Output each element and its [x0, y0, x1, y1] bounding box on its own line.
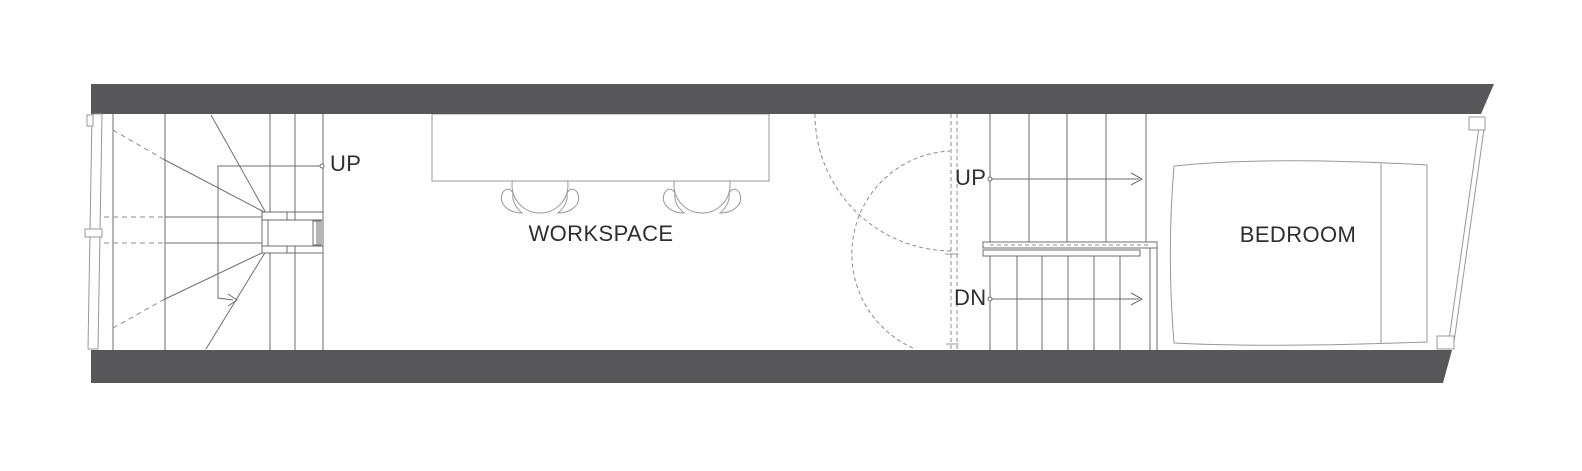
- straight-stair-upper-flight: [990, 114, 1146, 242]
- straight-stair-lower-flight: [990, 256, 1120, 350]
- stair-handrail: [983, 242, 1157, 350]
- up-direction-arrow: [988, 173, 1142, 185]
- door-swing-arcs: [815, 114, 952, 348]
- right-stair-dn-label: DN: [954, 286, 987, 310]
- bed: [1170, 161, 1427, 346]
- right-stair-up-label: UP: [955, 166, 986, 190]
- desk: [432, 114, 769, 181]
- workspace-label: WORKSPACE: [529, 222, 674, 246]
- left-window-wall: [85, 114, 102, 349]
- bedroom-label: BEDROOM: [1240, 223, 1356, 247]
- floor-plan: UP WORKSPACE UP DN BEDROOM: [0, 0, 1582, 471]
- top-wall: [91, 84, 1494, 114]
- stair-core: [262, 212, 323, 253]
- down-direction-arrow: [988, 293, 1142, 305]
- right-window-wall: [1437, 117, 1485, 349]
- glass-partition: [945, 114, 959, 350]
- left-stair-up-label: UP: [330, 152, 361, 176]
- bottom-wall: [91, 350, 1452, 383]
